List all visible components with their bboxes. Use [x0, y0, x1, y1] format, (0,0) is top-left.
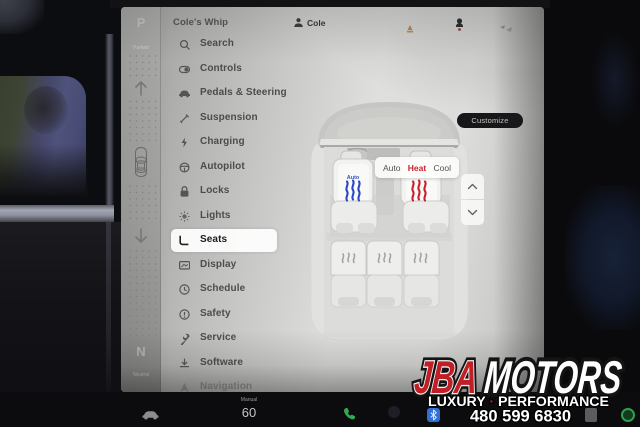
svg-text:Neutral: Neutral — [133, 372, 149, 378]
svg-text:N: N — [136, 344, 145, 359]
svg-text:480 599 6830: 480 599 6830 — [470, 408, 571, 426]
